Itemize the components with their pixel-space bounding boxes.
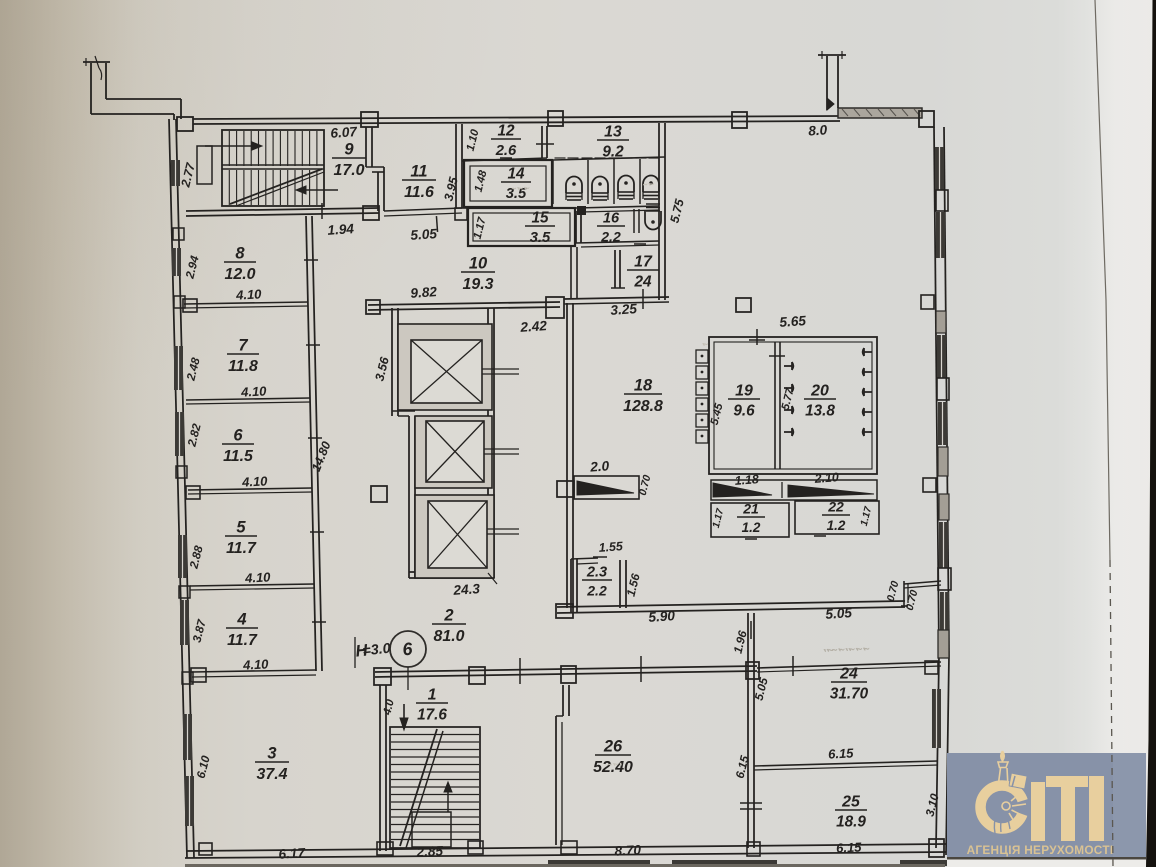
svg-text:4: 4 <box>236 611 246 629</box>
svg-text:8.70: 8.70 <box>614 842 642 858</box>
svg-text:6.15: 6.15 <box>828 745 855 761</box>
svg-text:4.10: 4.10 <box>241 473 269 489</box>
svg-text:31.70: 31.70 <box>830 686 869 703</box>
svg-text:37.4: 37.4 <box>257 766 288 783</box>
svg-text:2.2: 2.2 <box>600 228 621 244</box>
svg-text:12: 12 <box>497 123 515 140</box>
svg-text:1.55: 1.55 <box>598 539 624 555</box>
svg-text:3.25: 3.25 <box>610 301 638 318</box>
svg-text:11.7: 11.7 <box>226 540 257 557</box>
svg-text:5.05: 5.05 <box>825 605 853 622</box>
svg-text:3: 3 <box>267 745 276 763</box>
svg-text:6.17: 6.17 <box>278 845 307 861</box>
svg-text:˜‵˜‵˜: ˜‵˜‵˜ <box>511 185 531 200</box>
svg-text:24: 24 <box>633 274 652 291</box>
svg-text:2.10: 2.10 <box>813 470 839 486</box>
svg-text:2.6: 2.6 <box>495 143 517 159</box>
svg-text:14: 14 <box>507 166 525 183</box>
svg-text:1.94: 1.94 <box>327 221 355 238</box>
svg-text:4.10: 4.10 <box>240 383 268 399</box>
svg-text:9.82: 9.82 <box>410 284 438 301</box>
svg-text:1.2: 1.2 <box>827 518 846 533</box>
svg-text:3.5: 3.5 <box>530 230 551 246</box>
svg-text:6.15: 6.15 <box>836 839 863 855</box>
svg-text:2.2: 2.2 <box>586 582 607 598</box>
svg-text:4.10: 4.10 <box>235 286 263 302</box>
svg-text:‵‵˜˜‵˜‵‵˜‵˜‵˜: ‵‵˜˜‵˜‵‵˜‵˜‵˜ <box>821 645 870 662</box>
svg-text:9.2: 9.2 <box>602 144 624 161</box>
svg-text:11.6: 11.6 <box>404 184 434 201</box>
svg-text:17: 17 <box>634 254 653 271</box>
svg-text:12.0: 12.0 <box>225 266 256 283</box>
svg-text:9.6: 9.6 <box>733 403 755 420</box>
svg-text:2: 2 <box>443 607 453 625</box>
svg-text:2.42: 2.42 <box>519 318 548 335</box>
svg-text:13: 13 <box>604 124 622 141</box>
svg-text:19: 19 <box>735 383 753 400</box>
svg-text:19.3: 19.3 <box>463 276 494 293</box>
svg-text:11.8: 11.8 <box>228 358 258 375</box>
svg-text:10: 10 <box>469 255 488 273</box>
svg-text:4.10: 4.10 <box>242 656 270 672</box>
svg-text:5.90: 5.90 <box>648 608 676 625</box>
svg-text:15: 15 <box>531 210 549 227</box>
svg-text:1: 1 <box>428 687 437 704</box>
svg-text:13.8: 13.8 <box>805 403 835 420</box>
svg-text:5: 5 <box>236 519 246 537</box>
svg-text:2.0: 2.0 <box>589 458 610 474</box>
svg-text:1.2: 1.2 <box>742 520 761 535</box>
svg-text:8.0: 8.0 <box>808 122 828 138</box>
svg-text:18: 18 <box>634 377 653 395</box>
svg-text:6: 6 <box>233 427 243 445</box>
svg-text:7: 7 <box>238 337 248 355</box>
svg-text:18.9: 18.9 <box>836 814 866 831</box>
svg-text:2.85: 2.85 <box>415 843 444 859</box>
svg-text:11.5: 11.5 <box>223 448 254 465</box>
svg-text:=3.0: =3.0 <box>362 641 392 660</box>
svg-text:8: 8 <box>235 245 245 263</box>
svg-text:24.3: 24.3 <box>452 581 481 598</box>
svg-text:АГЕНЦІЯ НЕРУХОМОСТІ: АГЕНЦІЯ НЕРУХОМОСТІ <box>967 843 1114 857</box>
svg-text:25: 25 <box>841 794 861 811</box>
svg-text:81.0: 81.0 <box>434 628 465 645</box>
svg-text:22: 22 <box>827 499 844 515</box>
svg-text:20: 20 <box>810 383 829 400</box>
svg-text:2.3: 2.3 <box>586 565 607 581</box>
svg-text:21: 21 <box>742 501 759 517</box>
svg-text:17.0: 17.0 <box>334 162 365 179</box>
svg-text:9: 9 <box>344 141 354 159</box>
svg-text:26: 26 <box>603 738 623 756</box>
svg-text:4.10: 4.10 <box>244 569 272 585</box>
svg-text:17.6: 17.6 <box>417 707 447 724</box>
svg-text:16: 16 <box>603 211 620 227</box>
svg-text:11: 11 <box>410 163 427 181</box>
svg-text:128.8: 128.8 <box>623 398 663 415</box>
svg-text:24: 24 <box>839 666 858 683</box>
svg-text:11.7: 11.7 <box>227 632 258 649</box>
svg-text:5.05: 5.05 <box>410 226 438 243</box>
svg-text:5.65: 5.65 <box>779 313 807 330</box>
svg-text:6.07: 6.07 <box>330 124 359 141</box>
